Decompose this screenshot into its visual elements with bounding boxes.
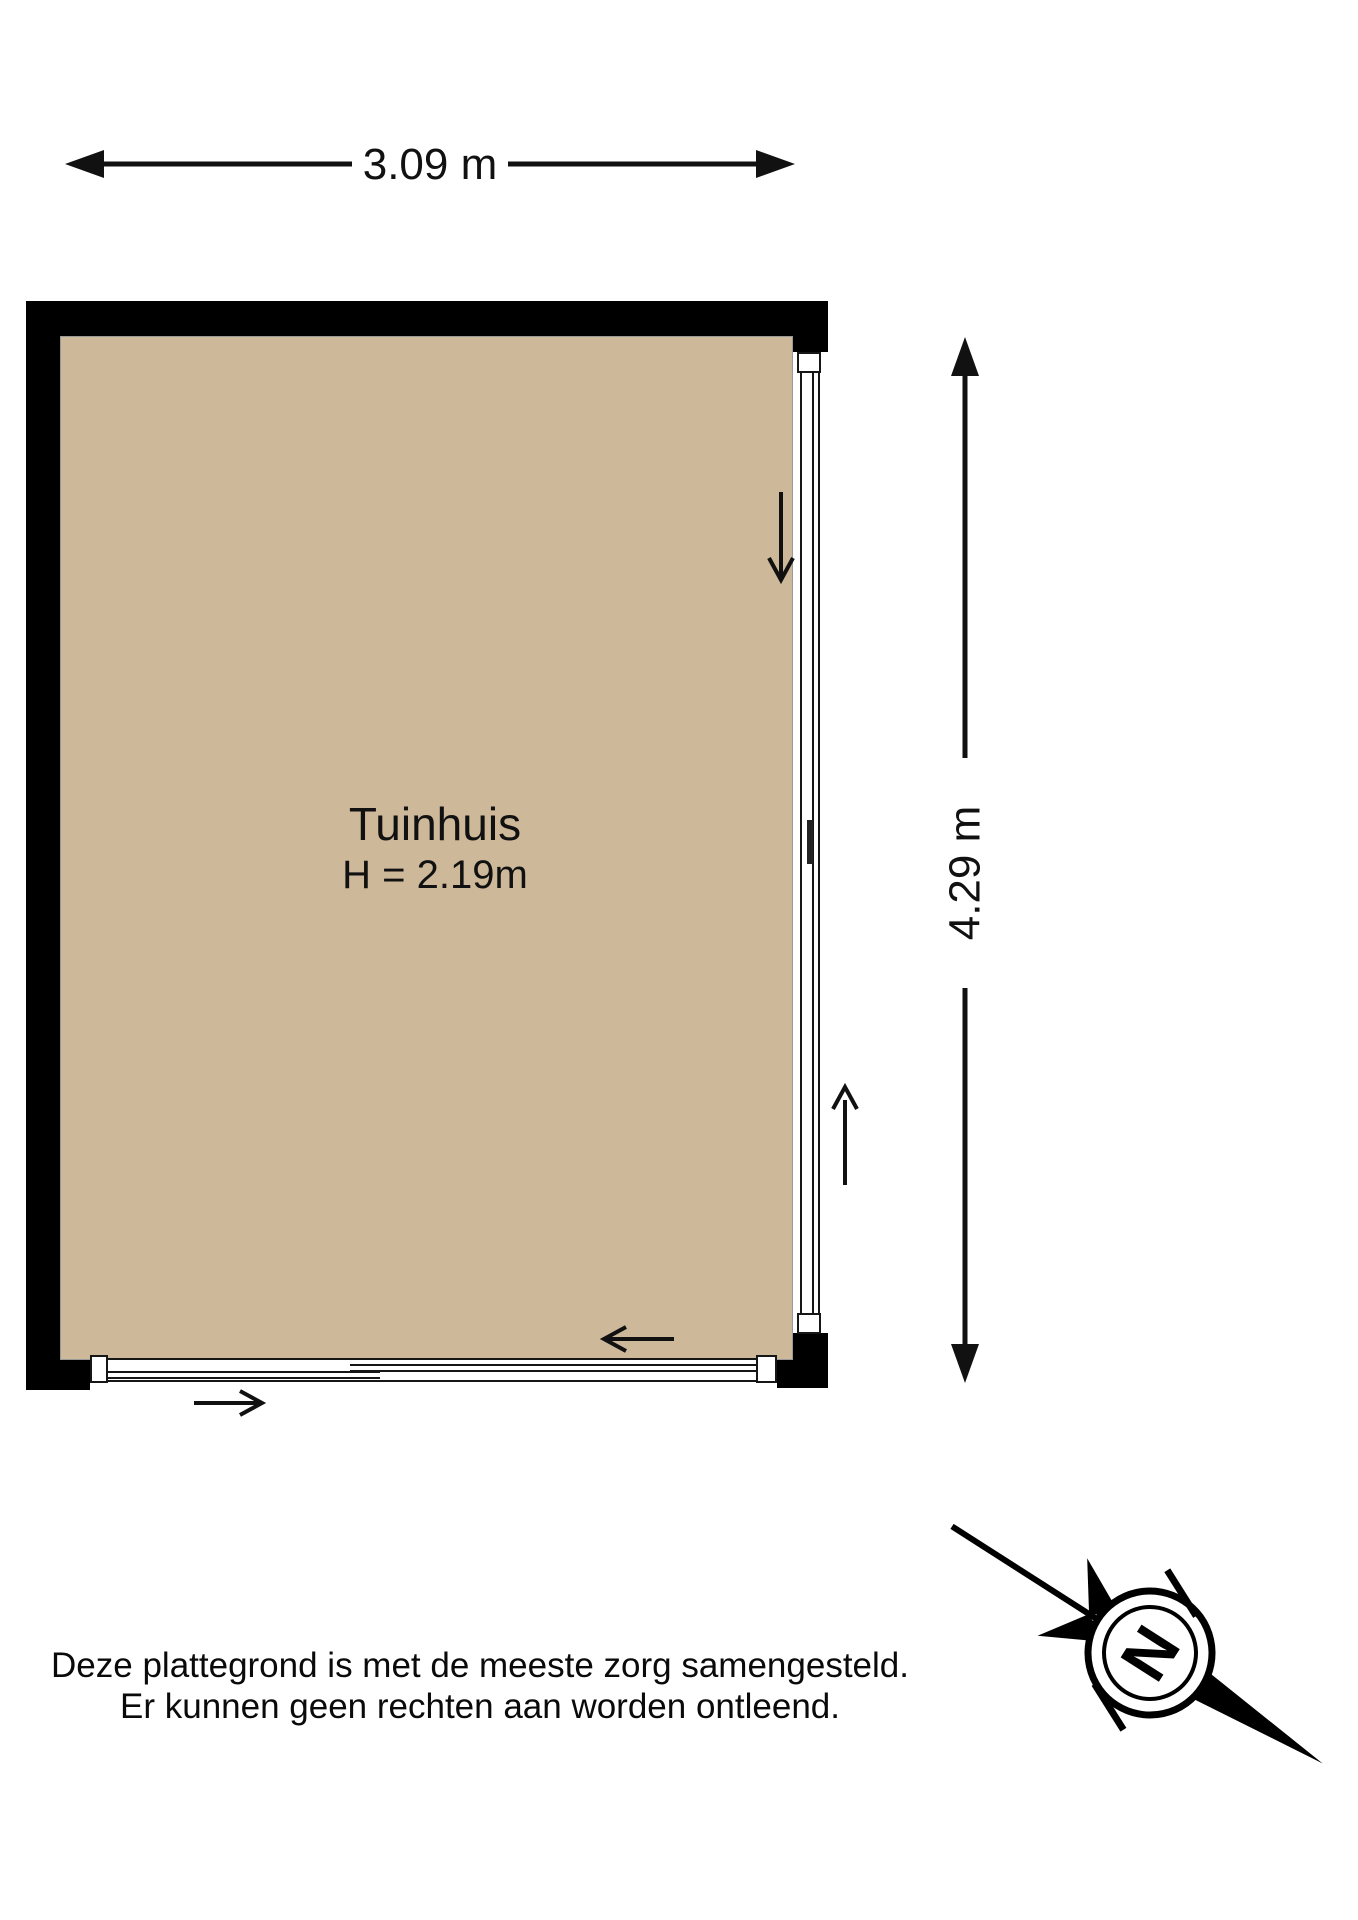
room-name-label: Tuinhuis [235, 797, 635, 851]
arrowhead-right-icon [756, 150, 795, 178]
arrowhead-left-icon [65, 150, 104, 178]
bottom-window-cap-left [90, 1355, 108, 1383]
north-compass: N [920, 1500, 1350, 1790]
door-slide-arrow-down-icon [760, 485, 804, 585]
right-window-cap-top [797, 352, 821, 373]
right-door-panel-edge [807, 820, 813, 864]
height-dimension-label: 4.29 m [917, 773, 1013, 973]
arrowhead-up-icon [951, 337, 979, 376]
disclaimer-text: Deze plattegrond is met de meeste zorg s… [0, 1645, 960, 1727]
floorplan-canvas: 3.09 m 4.29 m Tuinh [0, 0, 1358, 1920]
bottom-door-track-right [350, 1364, 758, 1372]
disclaimer-line-1: Deze plattegrond is met de meeste zorg s… [0, 1645, 960, 1686]
bottom-door-track-left [107, 1371, 380, 1379]
wall-top [26, 301, 793, 336]
arrowhead-down-icon [951, 1344, 979, 1383]
right-window-cap-bottom [797, 1313, 821, 1334]
wall-corner-top-right [793, 301, 828, 352]
room-ceiling-height-label: H = 2.19m [235, 853, 635, 898]
width-dimension-label: 3.09 m [330, 140, 530, 190]
bottom-window-cap-right [756, 1355, 777, 1383]
door-slide-arrow-left-icon [595, 1318, 685, 1360]
disclaimer-line-2: Er kunnen geen rechten aan worden ontlee… [0, 1686, 960, 1727]
right-window-track [812, 354, 820, 1316]
dimension-line-top [0, 0, 1358, 220]
door-slide-arrow-right-icon [185, 1382, 275, 1424]
door-slide-arrow-up-icon [823, 1080, 867, 1192]
wall-left [26, 301, 60, 1390]
